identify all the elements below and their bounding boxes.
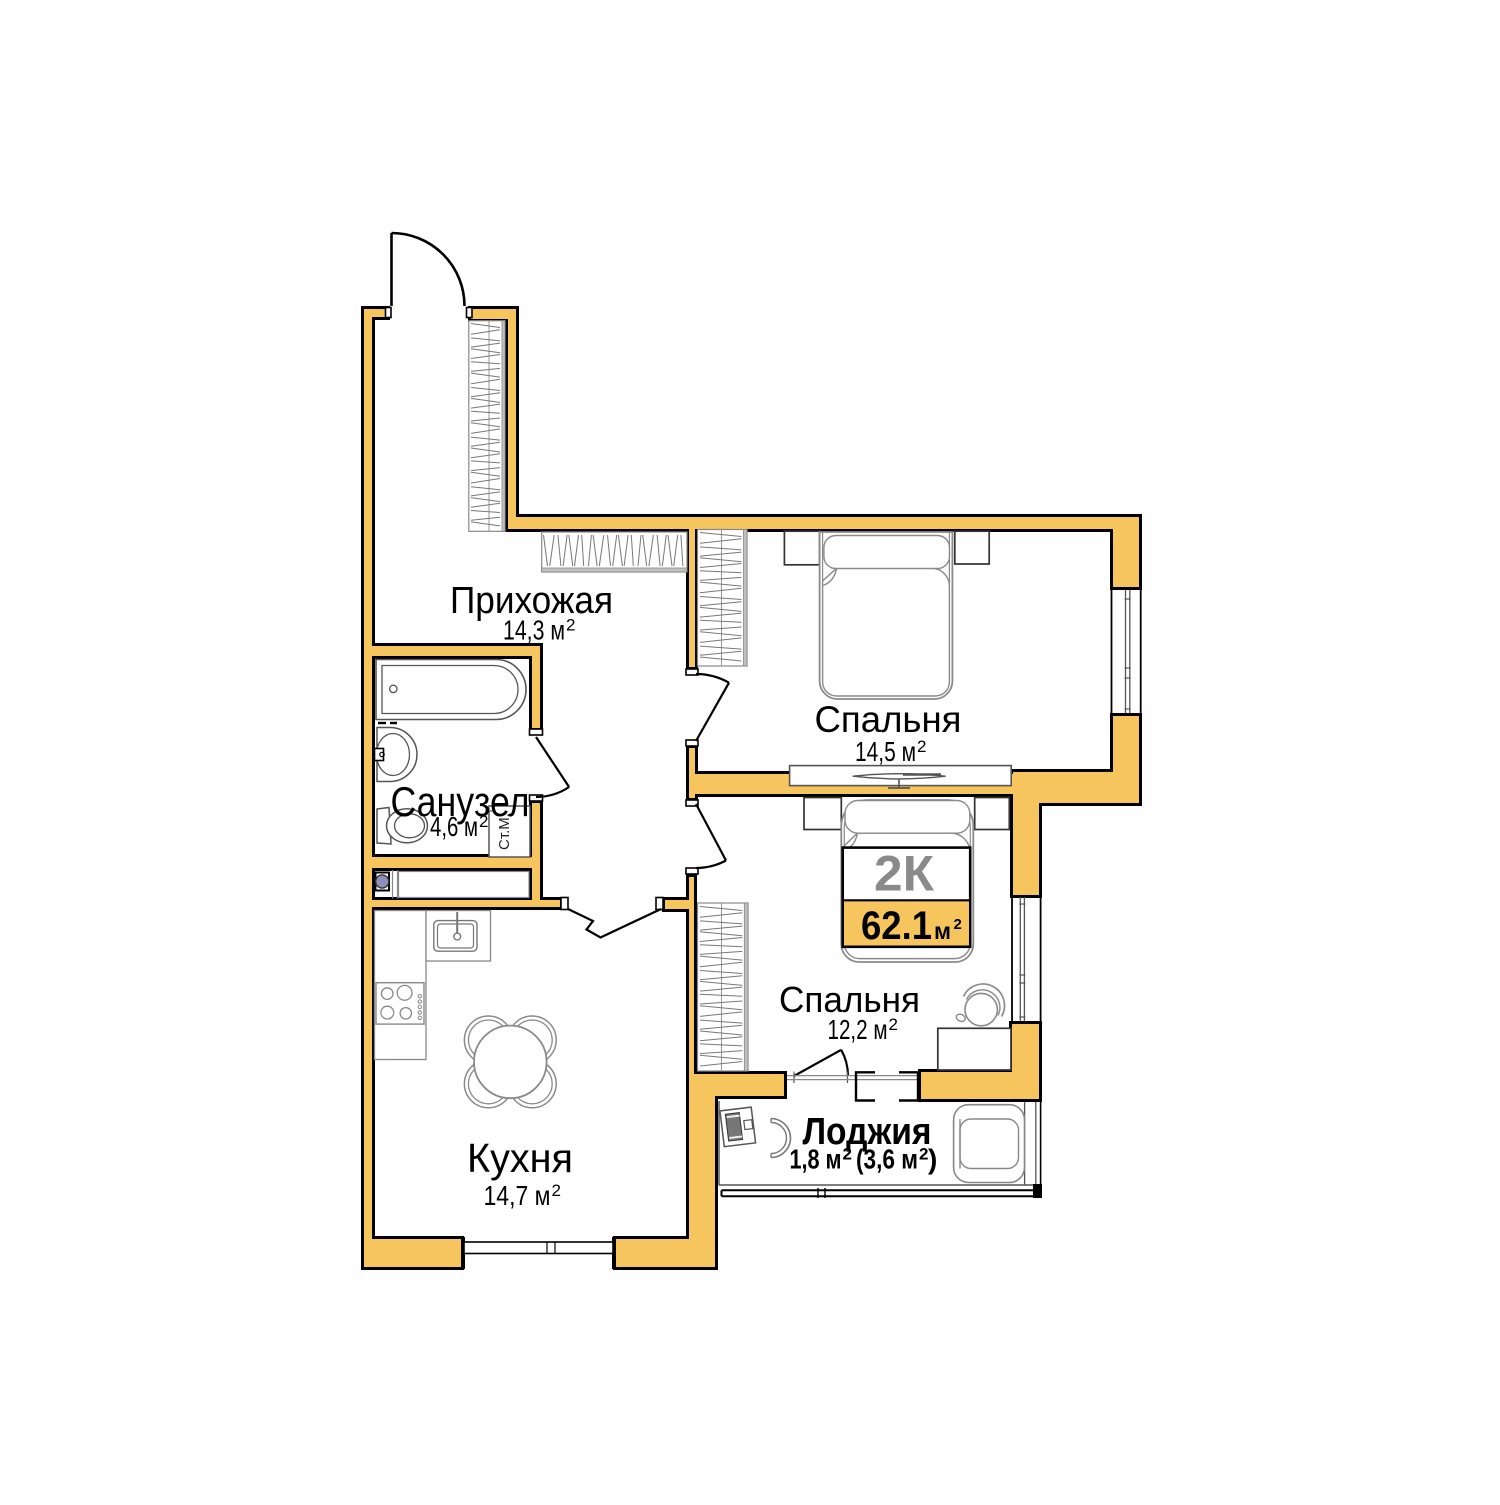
svg-text:62.1: 62.1 (861, 904, 932, 948)
svg-text:2: 2 (566, 616, 575, 635)
svg-text:2: 2 (917, 737, 926, 756)
svg-text:14,5 м: 14,5 м (855, 736, 916, 767)
svg-text:Кухня: Кухня (467, 1135, 573, 1181)
svg-text:2: 2 (889, 1015, 898, 1034)
svg-text:(3,6 м: (3,6 м (856, 1144, 918, 1175)
svg-text:2: 2 (552, 1181, 561, 1200)
svg-text:14,3 м: 14,3 м (503, 615, 565, 646)
svg-text:4,6 м: 4,6 м (430, 811, 478, 842)
svg-text:1,8 м: 1,8 м (790, 1144, 842, 1175)
svg-text:2: 2 (843, 1145, 852, 1164)
svg-text:12,2 м: 12,2 м (828, 1014, 888, 1045)
svg-text:Спальня: Спальня (815, 699, 962, 740)
svg-text:14,7 м: 14,7 м (484, 1180, 551, 1211)
svg-text:м: м (934, 918, 951, 944)
svg-text:2: 2 (479, 812, 488, 831)
svg-text:2: 2 (954, 916, 962, 933)
svg-text:): ) (928, 1144, 937, 1175)
svg-text:2К: 2К (874, 846, 934, 902)
